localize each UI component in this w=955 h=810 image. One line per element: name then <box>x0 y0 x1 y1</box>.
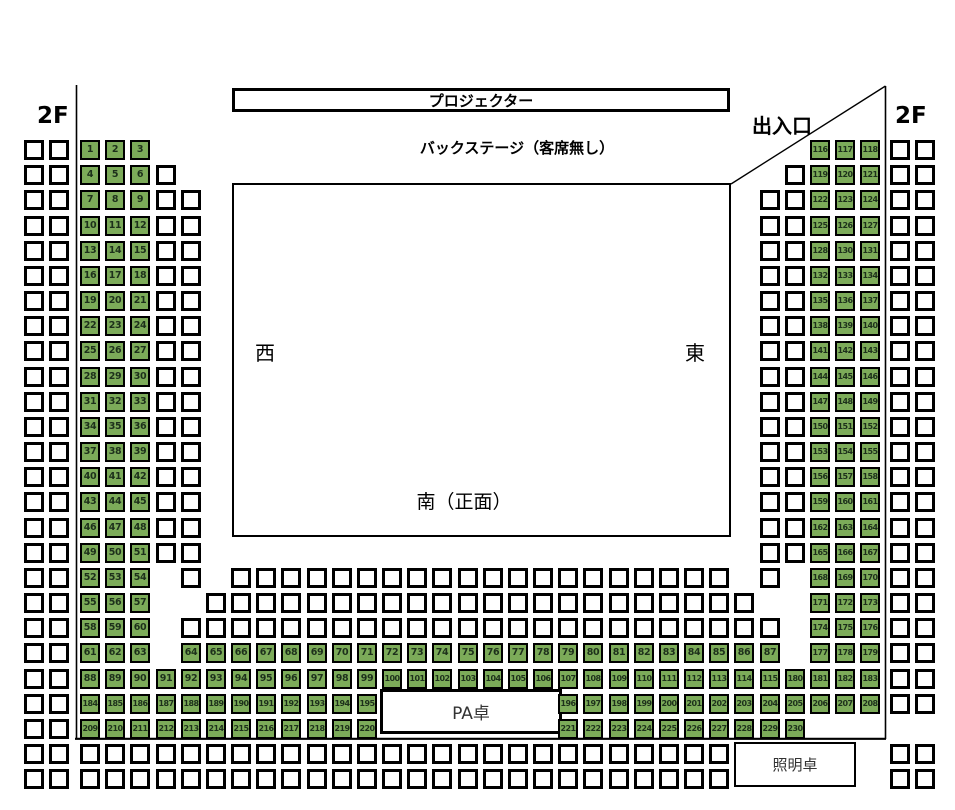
seat-70[interactable]: 70 <box>332 643 352 663</box>
seat-42[interactable]: 42 <box>130 467 150 487</box>
seat-187[interactable]: 187 <box>156 694 176 714</box>
seat-unnumbered[interactable] <box>760 442 780 462</box>
seat-1[interactable]: 1 <box>80 140 100 160</box>
seat-unnumbered[interactable] <box>432 568 452 588</box>
seat-unnumbered[interactable] <box>181 518 201 538</box>
seat-unnumbered[interactable] <box>890 744 910 764</box>
seat-unnumbered[interactable] <box>458 769 478 789</box>
seat-100[interactable]: 100 <box>382 669 402 689</box>
seat-unnumbered[interactable] <box>533 769 553 789</box>
seat-186[interactable]: 186 <box>130 694 150 714</box>
seat-unnumbered[interactable] <box>206 744 226 764</box>
seat-unnumbered[interactable] <box>533 618 553 638</box>
seat-182[interactable]: 182 <box>835 669 855 689</box>
seat-unnumbered[interactable] <box>785 417 805 437</box>
seat-unnumbered[interactable] <box>785 341 805 361</box>
seat-unnumbered[interactable] <box>49 341 69 361</box>
seat-10[interactable]: 10 <box>80 216 100 236</box>
seat-55[interactable]: 55 <box>80 593 100 613</box>
seat-unnumbered[interactable] <box>281 593 301 613</box>
seat-unnumbered[interactable] <box>181 744 201 764</box>
seat-unnumbered[interactable] <box>684 618 704 638</box>
seat-unnumbered[interactable] <box>483 618 503 638</box>
seat-unnumbered[interactable] <box>659 618 679 638</box>
seat-unnumbered[interactable] <box>181 190 201 210</box>
seat-unnumbered[interactable] <box>156 190 176 210</box>
seat-137[interactable]: 137 <box>860 291 880 311</box>
seat-unnumbered[interactable] <box>24 618 44 638</box>
seat-unnumbered[interactable] <box>508 593 528 613</box>
seat-17[interactable]: 17 <box>105 266 125 286</box>
seat-unnumbered[interactable] <box>231 769 251 789</box>
seat-84[interactable]: 84 <box>684 643 704 663</box>
seat-169[interactable]: 169 <box>835 568 855 588</box>
seat-unnumbered[interactable] <box>24 367 44 387</box>
seat-unnumbered[interactable] <box>49 216 69 236</box>
seat-63[interactable]: 63 <box>130 643 150 663</box>
seat-175[interactable]: 175 <box>835 618 855 638</box>
seat-unnumbered[interactable] <box>49 467 69 487</box>
seat-unnumbered[interactable] <box>915 769 935 789</box>
seat-123[interactable]: 123 <box>835 190 855 210</box>
seat-unnumbered[interactable] <box>49 669 69 689</box>
seat-unnumbered[interactable] <box>890 593 910 613</box>
seat-164[interactable]: 164 <box>860 518 880 538</box>
seat-unnumbered[interactable] <box>760 492 780 512</box>
seat-unnumbered[interactable] <box>915 316 935 336</box>
seat-unnumbered[interactable] <box>407 568 427 588</box>
seat-unnumbered[interactable] <box>181 442 201 462</box>
seat-unnumbered[interactable] <box>49 518 69 538</box>
seat-unnumbered[interactable] <box>49 417 69 437</box>
seat-211[interactable]: 211 <box>130 719 150 739</box>
seat-unnumbered[interactable] <box>890 492 910 512</box>
seat-172[interactable]: 172 <box>835 593 855 613</box>
seat-unnumbered[interactable] <box>760 518 780 538</box>
seat-93[interactable]: 93 <box>206 669 226 689</box>
seat-unnumbered[interactable] <box>49 618 69 638</box>
seat-unnumbered[interactable] <box>734 593 754 613</box>
seat-unnumbered[interactable] <box>634 593 654 613</box>
seat-52[interactable]: 52 <box>80 568 100 588</box>
seat-unnumbered[interactable] <box>231 618 251 638</box>
seat-174[interactable]: 174 <box>810 618 830 638</box>
seat-unnumbered[interactable] <box>181 367 201 387</box>
seat-99[interactable]: 99 <box>357 669 377 689</box>
seat-60[interactable]: 60 <box>130 618 150 638</box>
seat-163[interactable]: 163 <box>835 518 855 538</box>
seat-unnumbered[interactable] <box>357 568 377 588</box>
seat-171[interactable]: 171 <box>810 593 830 613</box>
seat-unnumbered[interactable] <box>634 568 654 588</box>
seat-unnumbered[interactable] <box>508 568 528 588</box>
seat-unnumbered[interactable] <box>785 266 805 286</box>
seat-150[interactable]: 150 <box>810 417 830 437</box>
seat-unnumbered[interactable] <box>709 568 729 588</box>
seat-208[interactable]: 208 <box>860 694 880 714</box>
seat-unnumbered[interactable] <box>915 367 935 387</box>
seat-unnumbered[interactable] <box>256 769 276 789</box>
seat-122[interactable]: 122 <box>810 190 830 210</box>
seat-108[interactable]: 108 <box>583 669 603 689</box>
seat-unnumbered[interactable] <box>890 467 910 487</box>
seat-176[interactable]: 176 <box>860 618 880 638</box>
seat-unnumbered[interactable] <box>915 165 935 185</box>
seat-154[interactable]: 154 <box>835 442 855 462</box>
seat-unnumbered[interactable] <box>256 744 276 764</box>
seat-unnumbered[interactable] <box>458 593 478 613</box>
seat-unnumbered[interactable] <box>760 216 780 236</box>
seat-unnumbered[interactable] <box>533 593 553 613</box>
seat-170[interactable]: 170 <box>860 568 880 588</box>
seat-unnumbered[interactable] <box>156 367 176 387</box>
seat-117[interactable]: 117 <box>835 140 855 160</box>
seat-unnumbered[interactable] <box>49 719 69 739</box>
seat-unnumbered[interactable] <box>156 216 176 236</box>
seat-unnumbered[interactable] <box>49 266 69 286</box>
seat-11[interactable]: 11 <box>105 216 125 236</box>
seat-161[interactable]: 161 <box>860 492 880 512</box>
seat-126[interactable]: 126 <box>835 216 855 236</box>
seat-47[interactable]: 47 <box>105 518 125 538</box>
seat-177[interactable]: 177 <box>810 643 830 663</box>
seat-85[interactable]: 85 <box>709 643 729 663</box>
seat-unnumbered[interactable] <box>760 341 780 361</box>
seat-unnumbered[interactable] <box>915 140 935 160</box>
seat-unnumbered[interactable] <box>181 769 201 789</box>
seat-153[interactable]: 153 <box>810 442 830 462</box>
seat-15[interactable]: 15 <box>130 241 150 261</box>
seat-222[interactable]: 222 <box>583 719 603 739</box>
seat-91[interactable]: 91 <box>156 669 176 689</box>
seat-unnumbered[interactable] <box>24 341 44 361</box>
seat-121[interactable]: 121 <box>860 165 880 185</box>
seat-unnumbered[interactable] <box>785 543 805 563</box>
seat-24[interactable]: 24 <box>130 316 150 336</box>
seat-unnumbered[interactable] <box>24 769 44 789</box>
seat-unnumbered[interactable] <box>307 744 327 764</box>
seat-14[interactable]: 14 <box>105 241 125 261</box>
seat-105[interactable]: 105 <box>508 669 528 689</box>
seat-unnumbered[interactable] <box>24 643 44 663</box>
seat-unnumbered[interactable] <box>432 744 452 764</box>
seat-229[interactable]: 229 <box>760 719 780 739</box>
seat-189[interactable]: 189 <box>206 694 226 714</box>
seat-116[interactable]: 116 <box>810 140 830 160</box>
seat-unnumbered[interactable] <box>24 216 44 236</box>
seat-215[interactable]: 215 <box>231 719 251 739</box>
seat-unnumbered[interactable] <box>382 769 402 789</box>
seat-unnumbered[interactable] <box>156 543 176 563</box>
seat-78[interactable]: 78 <box>533 643 553 663</box>
seat-143[interactable]: 143 <box>860 341 880 361</box>
seat-unnumbered[interactable] <box>915 543 935 563</box>
seat-58[interactable]: 58 <box>80 618 100 638</box>
seat-unnumbered[interactable] <box>890 518 910 538</box>
seat-unnumbered[interactable] <box>156 467 176 487</box>
seat-21[interactable]: 21 <box>130 291 150 311</box>
seat-unnumbered[interactable] <box>915 492 935 512</box>
seat-29[interactable]: 29 <box>105 367 125 387</box>
seat-82[interactable]: 82 <box>634 643 654 663</box>
seat-unnumbered[interactable] <box>156 769 176 789</box>
seat-unnumbered[interactable] <box>709 769 729 789</box>
seat-unnumbered[interactable] <box>49 241 69 261</box>
seat-unnumbered[interactable] <box>634 769 654 789</box>
seat-226[interactable]: 226 <box>684 719 704 739</box>
seat-unnumbered[interactable] <box>130 769 150 789</box>
seat-unnumbered[interactable] <box>890 367 910 387</box>
seat-34[interactable]: 34 <box>80 417 100 437</box>
seat-unnumbered[interactable] <box>24 241 44 261</box>
seat-unnumbered[interactable] <box>181 543 201 563</box>
seat-9[interactable]: 9 <box>130 190 150 210</box>
seat-127[interactable]: 127 <box>860 216 880 236</box>
seat-80[interactable]: 80 <box>583 643 603 663</box>
seat-unnumbered[interactable] <box>156 442 176 462</box>
seat-unnumbered[interactable] <box>760 568 780 588</box>
seat-unnumbered[interactable] <box>231 744 251 764</box>
seat-206[interactable]: 206 <box>810 694 830 714</box>
seat-69[interactable]: 69 <box>307 643 327 663</box>
seat-unnumbered[interactable] <box>558 593 578 613</box>
seat-unnumbered[interactable] <box>382 568 402 588</box>
seat-118[interactable]: 118 <box>860 140 880 160</box>
seat-32[interactable]: 32 <box>105 392 125 412</box>
seat-160[interactable]: 160 <box>835 492 855 512</box>
seat-unnumbered[interactable] <box>332 744 352 764</box>
seat-40[interactable]: 40 <box>80 467 100 487</box>
seat-6[interactable]: 6 <box>130 165 150 185</box>
seat-113[interactable]: 113 <box>709 669 729 689</box>
seat-unnumbered[interactable] <box>156 266 176 286</box>
seat-184[interactable]: 184 <box>80 694 100 714</box>
seat-unnumbered[interactable] <box>432 593 452 613</box>
seat-156[interactable]: 156 <box>810 467 830 487</box>
seat-57[interactable]: 57 <box>130 593 150 613</box>
seat-130[interactable]: 130 <box>835 241 855 261</box>
seat-194[interactable]: 194 <box>332 694 352 714</box>
seat-unnumbered[interactable] <box>785 518 805 538</box>
seat-unnumbered[interactable] <box>181 266 201 286</box>
seat-unnumbered[interactable] <box>49 291 69 311</box>
seat-unnumbered[interactable] <box>659 744 679 764</box>
seat-147[interactable]: 147 <box>810 392 830 412</box>
seat-37[interactable]: 37 <box>80 442 100 462</box>
seat-unnumbered[interactable] <box>890 442 910 462</box>
seat-unnumbered[interactable] <box>785 216 805 236</box>
seat-115[interactable]: 115 <box>760 669 780 689</box>
seat-33[interactable]: 33 <box>130 392 150 412</box>
seat-124[interactable]: 124 <box>860 190 880 210</box>
seat-8[interactable]: 8 <box>105 190 125 210</box>
seat-75[interactable]: 75 <box>458 643 478 663</box>
seat-unnumbered[interactable] <box>156 744 176 764</box>
seat-unnumbered[interactable] <box>357 744 377 764</box>
seat-unnumbered[interactable] <box>533 568 553 588</box>
seat-119[interactable]: 119 <box>810 165 830 185</box>
seat-unnumbered[interactable] <box>915 568 935 588</box>
seat-67[interactable]: 67 <box>256 643 276 663</box>
seat-unnumbered[interactable] <box>206 618 226 638</box>
seat-104[interactable]: 104 <box>483 669 503 689</box>
seat-102[interactable]: 102 <box>432 669 452 689</box>
seat-unnumbered[interactable] <box>407 618 427 638</box>
seat-unnumbered[interactable] <box>583 618 603 638</box>
seat-197[interactable]: 197 <box>583 694 603 714</box>
seat-unnumbered[interactable] <box>558 618 578 638</box>
seat-unnumbered[interactable] <box>24 266 44 286</box>
seat-unnumbered[interactable] <box>785 367 805 387</box>
seat-77[interactable]: 77 <box>508 643 528 663</box>
seat-unnumbered[interactable] <box>156 392 176 412</box>
seat-unnumbered[interactable] <box>609 593 629 613</box>
seat-152[interactable]: 152 <box>860 417 880 437</box>
seat-unnumbered[interactable] <box>49 769 69 789</box>
seat-unnumbered[interactable] <box>24 568 44 588</box>
seat-unnumbered[interactable] <box>915 341 935 361</box>
seat-unnumbered[interactable] <box>785 442 805 462</box>
seat-207[interactable]: 207 <box>835 694 855 714</box>
seat-unnumbered[interactable] <box>49 442 69 462</box>
seat-unnumbered[interactable] <box>760 417 780 437</box>
seat-unnumbered[interactable] <box>890 241 910 261</box>
seat-141[interactable]: 141 <box>810 341 830 361</box>
seat-12[interactable]: 12 <box>130 216 150 236</box>
seat-unnumbered[interactable] <box>24 417 44 437</box>
seat-135[interactable]: 135 <box>810 291 830 311</box>
seat-unnumbered[interactable] <box>760 291 780 311</box>
seat-unnumbered[interactable] <box>915 392 935 412</box>
seat-28[interactable]: 28 <box>80 367 100 387</box>
seat-181[interactable]: 181 <box>810 669 830 689</box>
seat-unnumbered[interactable] <box>915 417 935 437</box>
seat-136[interactable]: 136 <box>835 291 855 311</box>
seat-unnumbered[interactable] <box>890 568 910 588</box>
seat-179[interactable]: 179 <box>860 643 880 663</box>
seat-72[interactable]: 72 <box>382 643 402 663</box>
seat-217[interactable]: 217 <box>281 719 301 739</box>
seat-unnumbered[interactable] <box>915 518 935 538</box>
seat-unnumbered[interactable] <box>760 543 780 563</box>
seat-87[interactable]: 87 <box>760 643 780 663</box>
seat-unnumbered[interactable] <box>24 593 44 613</box>
seat-unnumbered[interactable] <box>890 417 910 437</box>
seat-unnumbered[interactable] <box>915 190 935 210</box>
seat-unnumbered[interactable] <box>890 216 910 236</box>
seat-120[interactable]: 120 <box>835 165 855 185</box>
seat-unnumbered[interactable] <box>24 719 44 739</box>
seat-unnumbered[interactable] <box>407 769 427 789</box>
seat-68[interactable]: 68 <box>281 643 301 663</box>
seat-112[interactable]: 112 <box>684 669 704 689</box>
seat-unnumbered[interactable] <box>24 744 44 764</box>
seat-86[interactable]: 86 <box>734 643 754 663</box>
seat-unnumbered[interactable] <box>915 467 935 487</box>
seat-unnumbered[interactable] <box>483 744 503 764</box>
seat-203[interactable]: 203 <box>734 694 754 714</box>
seat-202[interactable]: 202 <box>709 694 729 714</box>
seat-unnumbered[interactable] <box>709 618 729 638</box>
seat-74[interactable]: 74 <box>432 643 452 663</box>
seat-unnumbered[interactable] <box>558 769 578 789</box>
seat-unnumbered[interactable] <box>785 392 805 412</box>
seat-98[interactable]: 98 <box>332 669 352 689</box>
seat-unnumbered[interactable] <box>181 316 201 336</box>
seat-61[interactable]: 61 <box>80 643 100 663</box>
seat-46[interactable]: 46 <box>80 518 100 538</box>
seat-unnumbered[interactable] <box>483 568 503 588</box>
seat-unnumbered[interactable] <box>24 140 44 160</box>
seat-unnumbered[interactable] <box>890 543 910 563</box>
seat-unnumbered[interactable] <box>785 165 805 185</box>
seat-212[interactable]: 212 <box>156 719 176 739</box>
seat-214[interactable]: 214 <box>206 719 226 739</box>
seat-unnumbered[interactable] <box>483 593 503 613</box>
seat-unnumbered[interactable] <box>130 744 150 764</box>
seat-96[interactable]: 96 <box>281 669 301 689</box>
seat-64[interactable]: 64 <box>181 643 201 663</box>
seat-128[interactable]: 128 <box>810 241 830 261</box>
seat-79[interactable]: 79 <box>558 643 578 663</box>
seat-unnumbered[interactable] <box>156 341 176 361</box>
seat-165[interactable]: 165 <box>810 543 830 563</box>
seat-unnumbered[interactable] <box>760 467 780 487</box>
seat-unnumbered[interactable] <box>49 694 69 714</box>
seat-unnumbered[interactable] <box>49 543 69 563</box>
seat-unnumbered[interactable] <box>785 241 805 261</box>
seat-192[interactable]: 192 <box>281 694 301 714</box>
seat-95[interactable]: 95 <box>256 669 276 689</box>
seat-unnumbered[interactable] <box>24 669 44 689</box>
seat-unnumbered[interactable] <box>659 593 679 613</box>
seat-unnumbered[interactable] <box>307 618 327 638</box>
seat-unnumbered[interactable] <box>24 165 44 185</box>
seat-148[interactable]: 148 <box>835 392 855 412</box>
seat-unnumbered[interactable] <box>24 442 44 462</box>
seat-unnumbered[interactable] <box>785 291 805 311</box>
seat-unnumbered[interactable] <box>181 618 201 638</box>
seat-227[interactable]: 227 <box>709 719 729 739</box>
seat-38[interactable]: 38 <box>105 442 125 462</box>
seat-unnumbered[interactable] <box>24 392 44 412</box>
seat-unnumbered[interactable] <box>432 769 452 789</box>
seat-107[interactable]: 107 <box>558 669 578 689</box>
seat-131[interactable]: 131 <box>860 241 880 261</box>
seat-unnumbered[interactable] <box>281 568 301 588</box>
seat-unnumbered[interactable] <box>583 593 603 613</box>
seat-unnumbered[interactable] <box>281 618 301 638</box>
seat-unnumbered[interactable] <box>307 568 327 588</box>
seat-unnumbered[interactable] <box>382 618 402 638</box>
seat-unnumbered[interactable] <box>915 618 935 638</box>
seat-unnumbered[interactable] <box>709 593 729 613</box>
seat-180[interactable]: 180 <box>785 669 805 689</box>
seat-168[interactable]: 168 <box>810 568 830 588</box>
seat-92[interactable]: 92 <box>181 669 201 689</box>
seat-133[interactable]: 133 <box>835 266 855 286</box>
seat-unnumbered[interactable] <box>181 241 201 261</box>
seat-59[interactable]: 59 <box>105 618 125 638</box>
seat-unnumbered[interactable] <box>206 593 226 613</box>
seat-88[interactable]: 88 <box>80 669 100 689</box>
seat-unnumbered[interactable] <box>181 392 201 412</box>
seat-unnumbered[interactable] <box>181 417 201 437</box>
seat-unnumbered[interactable] <box>890 266 910 286</box>
seat-unnumbered[interactable] <box>24 518 44 538</box>
seat-90[interactable]: 90 <box>130 669 150 689</box>
seat-unnumbered[interactable] <box>181 492 201 512</box>
